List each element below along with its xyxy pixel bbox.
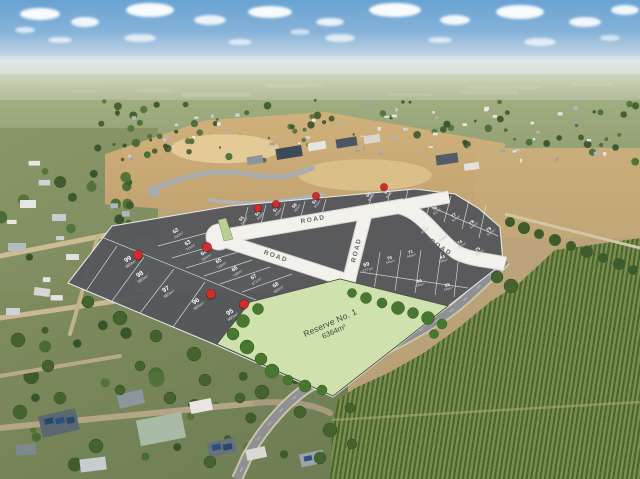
aerial-subdivision-photo: Reserve No. 1 6364m² 99989m²98985m²97985… [0,0,640,479]
site-plan-overlay [0,0,640,479]
